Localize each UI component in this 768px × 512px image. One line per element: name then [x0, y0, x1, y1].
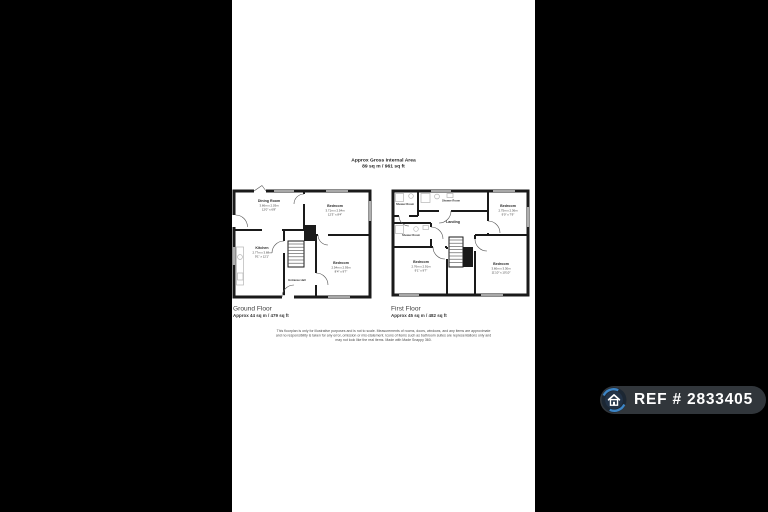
- room-dim-kitchen-imperial: 9'1" x 12'1": [255, 255, 269, 259]
- ground-floor-caption: Ground Floor Approx 44 sq m / 479 sq ft: [233, 305, 326, 327]
- room-label-shower-c: Shower Room: [402, 233, 421, 237]
- first-floor-area: Approx 45 sq m / 482 sq ft: [391, 313, 447, 318]
- kitchen-fixtures: [237, 247, 244, 285]
- first-floor-caption: First Floor Approx 45 sq m / 482 sq ft: [391, 305, 484, 327]
- ground-openings: [232, 189, 328, 299]
- room-label-shower-a: Shower Room: [396, 202, 415, 206]
- floorplan-photo: Approx Gross Internal Area 89 sq m / 961…: [0, 0, 768, 512]
- room-label-shower-b: Shower Room: [442, 199, 461, 203]
- room-label-bedroom-rear: Bedroom: [333, 261, 349, 265]
- first-floor-name: First Floor: [391, 305, 447, 313]
- first-floor-plan: Shower Room Shower Room Landing Bedroom …: [391, 185, 531, 303]
- ground-door-arcs: [236, 186, 329, 298]
- room-dim-bedroom-front-imperial: 12'3" x 8'4": [328, 213, 342, 217]
- room-dim-dining-imperial: 12'0" x 6'8": [262, 208, 276, 212]
- room-label-bedroom-rear-ff: Bedroom: [493, 262, 509, 266]
- room-dim-bedroom-rear-ff-imperial: 11'10" x 10'10": [492, 271, 511, 275]
- disclaimer-line-3: may not look like the real items. Made w…: [248, 338, 520, 343]
- room-dim-bedroom-front-ff-imperial: 9'0" x 7'9": [502, 213, 515, 217]
- disclaimer: This floorplan is only for illustrative …: [112, 329, 655, 356]
- ground-stairs: [288, 241, 304, 267]
- house-logo-icon: [601, 387, 627, 413]
- floorplan-sheet: Approx Gross Internal Area 89 sq m / 961…: [232, 0, 535, 512]
- room-label-bedroom-front: Bedroom: [327, 204, 343, 208]
- room-dim-bedroom-rear-imperial: 8'4" x 9'7": [335, 270, 348, 274]
- room-label-bedroom-left: Bedroom: [413, 260, 429, 264]
- ground-floor-area: Approx 44 sq m / 479 sq ft: [233, 313, 289, 318]
- ref-badge: REF # 2833405: [600, 386, 766, 414]
- room-label-entrance-hall: Entrance Hall: [288, 278, 305, 282]
- ground-chimney: [304, 225, 316, 241]
- room-dim-bedroom-left-imperial: 9'1" x 9'7": [415, 269, 428, 273]
- first-stairs: [449, 237, 463, 267]
- gia-value: 89 sq m / 961 sq ft: [300, 163, 467, 169]
- gross-internal-area-header: Approx Gross Internal Area 89 sq m / 961…: [232, 157, 535, 179]
- ground-floor-plan: Dining Room 3.66m x 2.03m 12'0" x 6'8" B…: [232, 185, 372, 303]
- ground-floor-name: Ground Floor: [233, 305, 289, 313]
- room-label-landing: Landing: [446, 220, 460, 224]
- room-label-bedroom-front-ff: Bedroom: [500, 204, 516, 208]
- first-chimney: [463, 247, 473, 267]
- room-label-dining: Dining Room: [258, 199, 280, 203]
- room-label-kitchen: Kitchen: [255, 246, 268, 250]
- ref-number: REF # 2833405: [634, 391, 753, 409]
